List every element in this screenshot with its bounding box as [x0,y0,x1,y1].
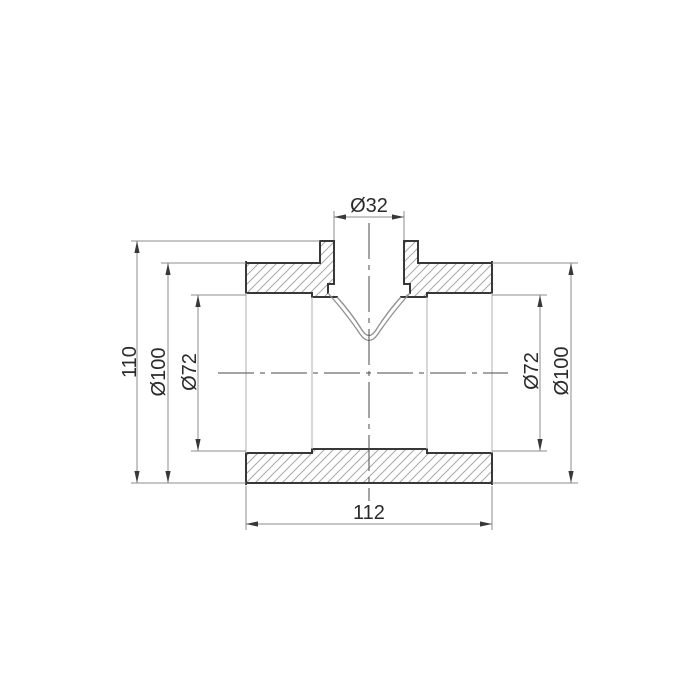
wall-top-left [246,241,337,297]
dim-label-total-height: 110 [119,346,141,378]
arrow-left-icon [246,521,258,526]
dim-label-outer-diameter-right: Ø100 [551,347,573,396]
dim-label-branch-bore: Ø32 [350,195,388,217]
dim-label-outer-diameter-left: Ø100 [148,348,170,397]
wall-top-right [401,241,492,297]
arrow-down-icon [537,439,542,451]
arrow-up-icon [537,295,542,307]
arrow-up-icon [165,263,170,275]
arrow-left-icon [334,214,346,219]
page: 110 Ø100 Ø72 Ø32 [0,0,700,700]
arrow-down-icon [568,471,573,483]
arrow-down-icon [165,471,170,483]
technical-drawing: 110 Ø100 Ø72 Ø32 [0,0,700,700]
arrow-right-icon [392,214,404,219]
dim-label-bore-diameter-right: Ø72 [521,352,543,390]
arrow-down-icon [134,471,139,483]
arrow-right-icon [480,521,492,526]
arrow-up-icon [568,263,573,275]
arrow-down-icon [195,439,200,451]
dim-label-bore-diameter-left: Ø72 [179,353,201,391]
dim-label-overall-length: 112 [353,502,385,524]
arrow-up-icon [195,295,200,307]
arrow-up-icon [134,241,139,253]
